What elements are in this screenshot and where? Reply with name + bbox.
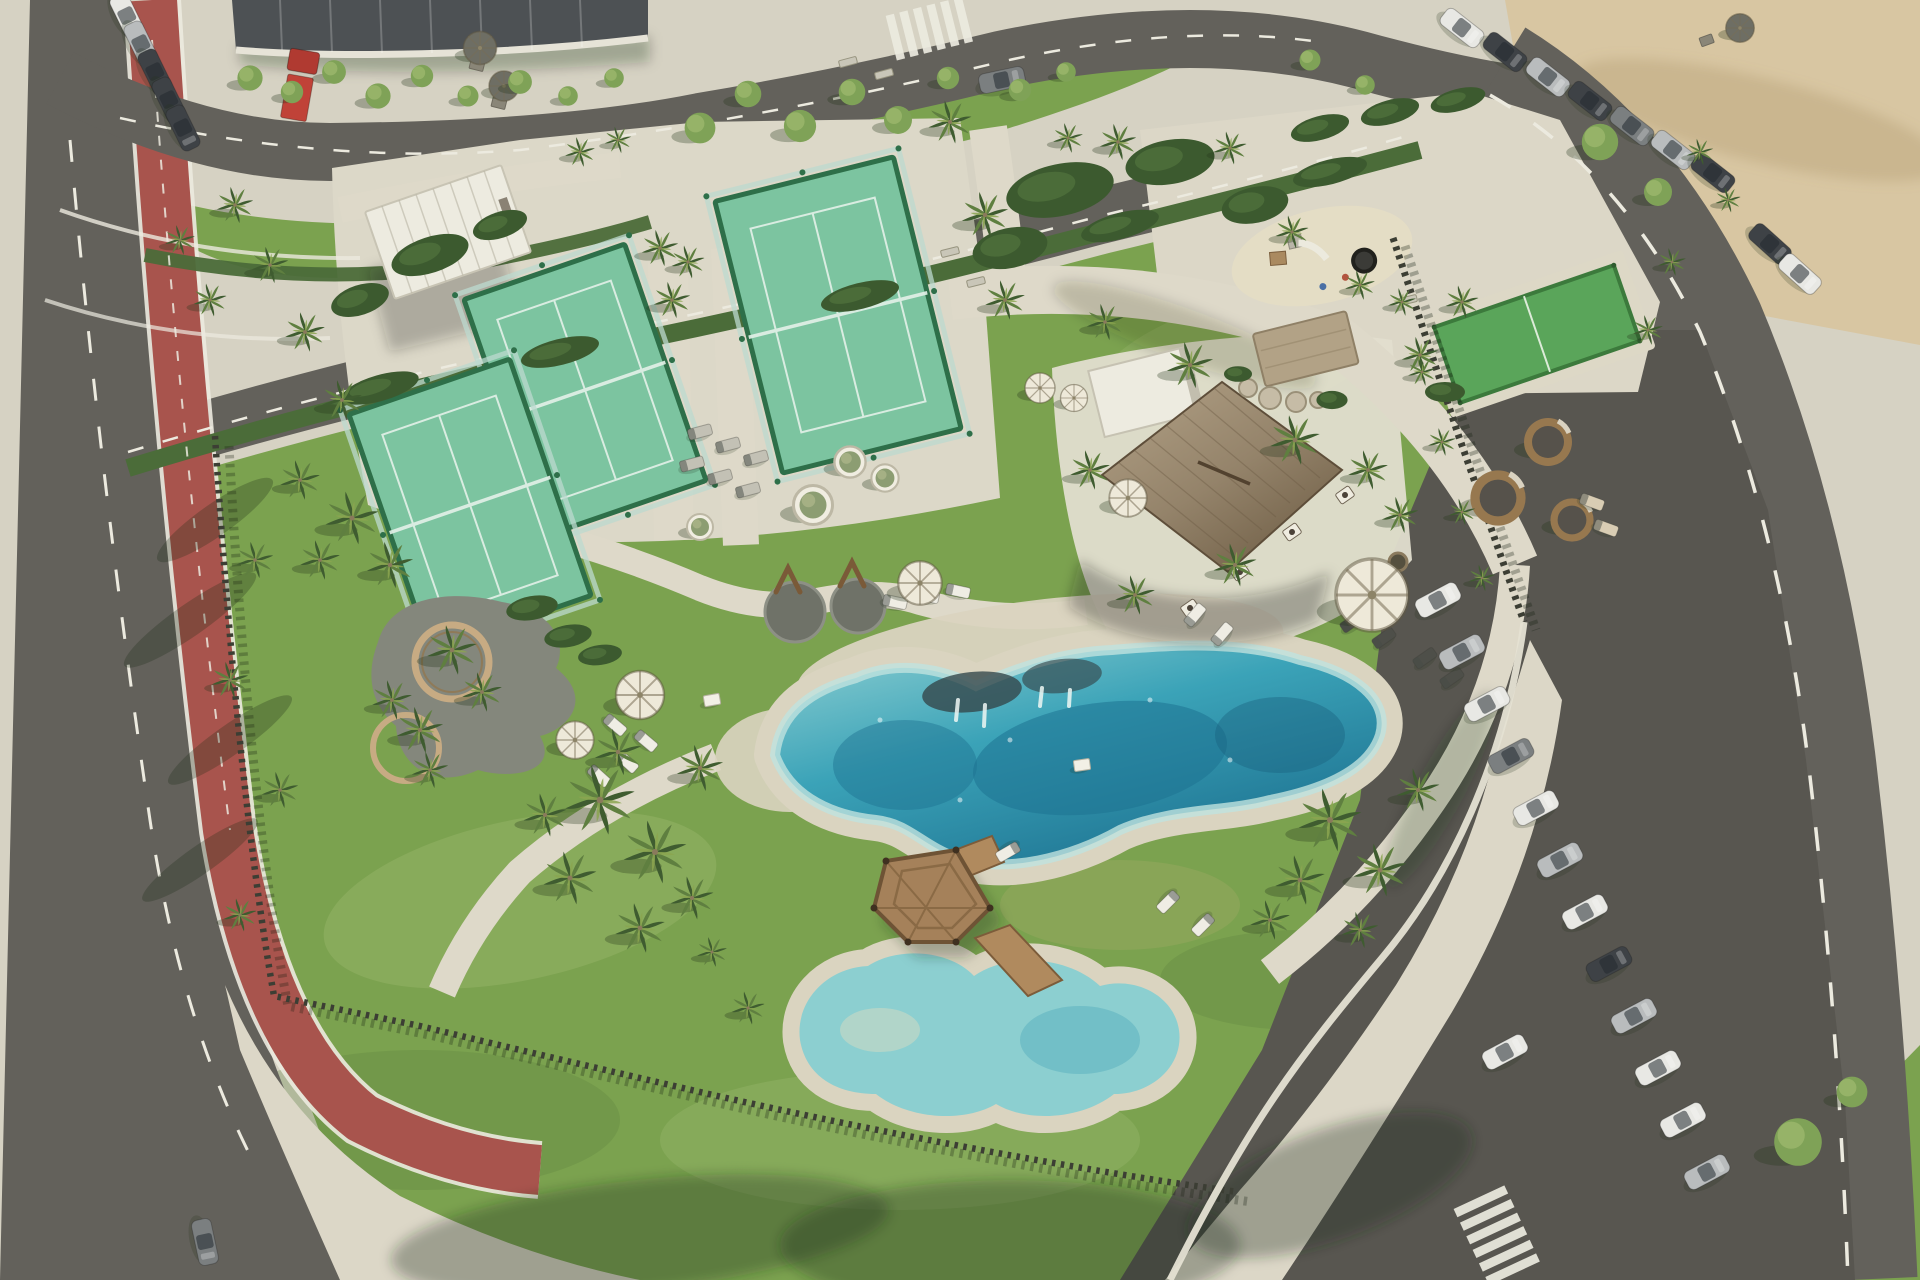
aerial-scene: [0, 0, 1920, 1280]
bushe: [1224, 366, 1252, 382]
pool-deep: [1215, 697, 1345, 773]
truck-cab: [287, 48, 320, 75]
kids-pool-deep: [1020, 1006, 1140, 1074]
bushe: [1316, 391, 1347, 409]
pool-deep: [833, 720, 977, 810]
kids-pool-sandbar: [840, 1008, 920, 1052]
climbing-frame: [1270, 251, 1287, 265]
bushe: [1425, 382, 1465, 402]
aerial-resort-render: [0, 0, 1920, 1280]
